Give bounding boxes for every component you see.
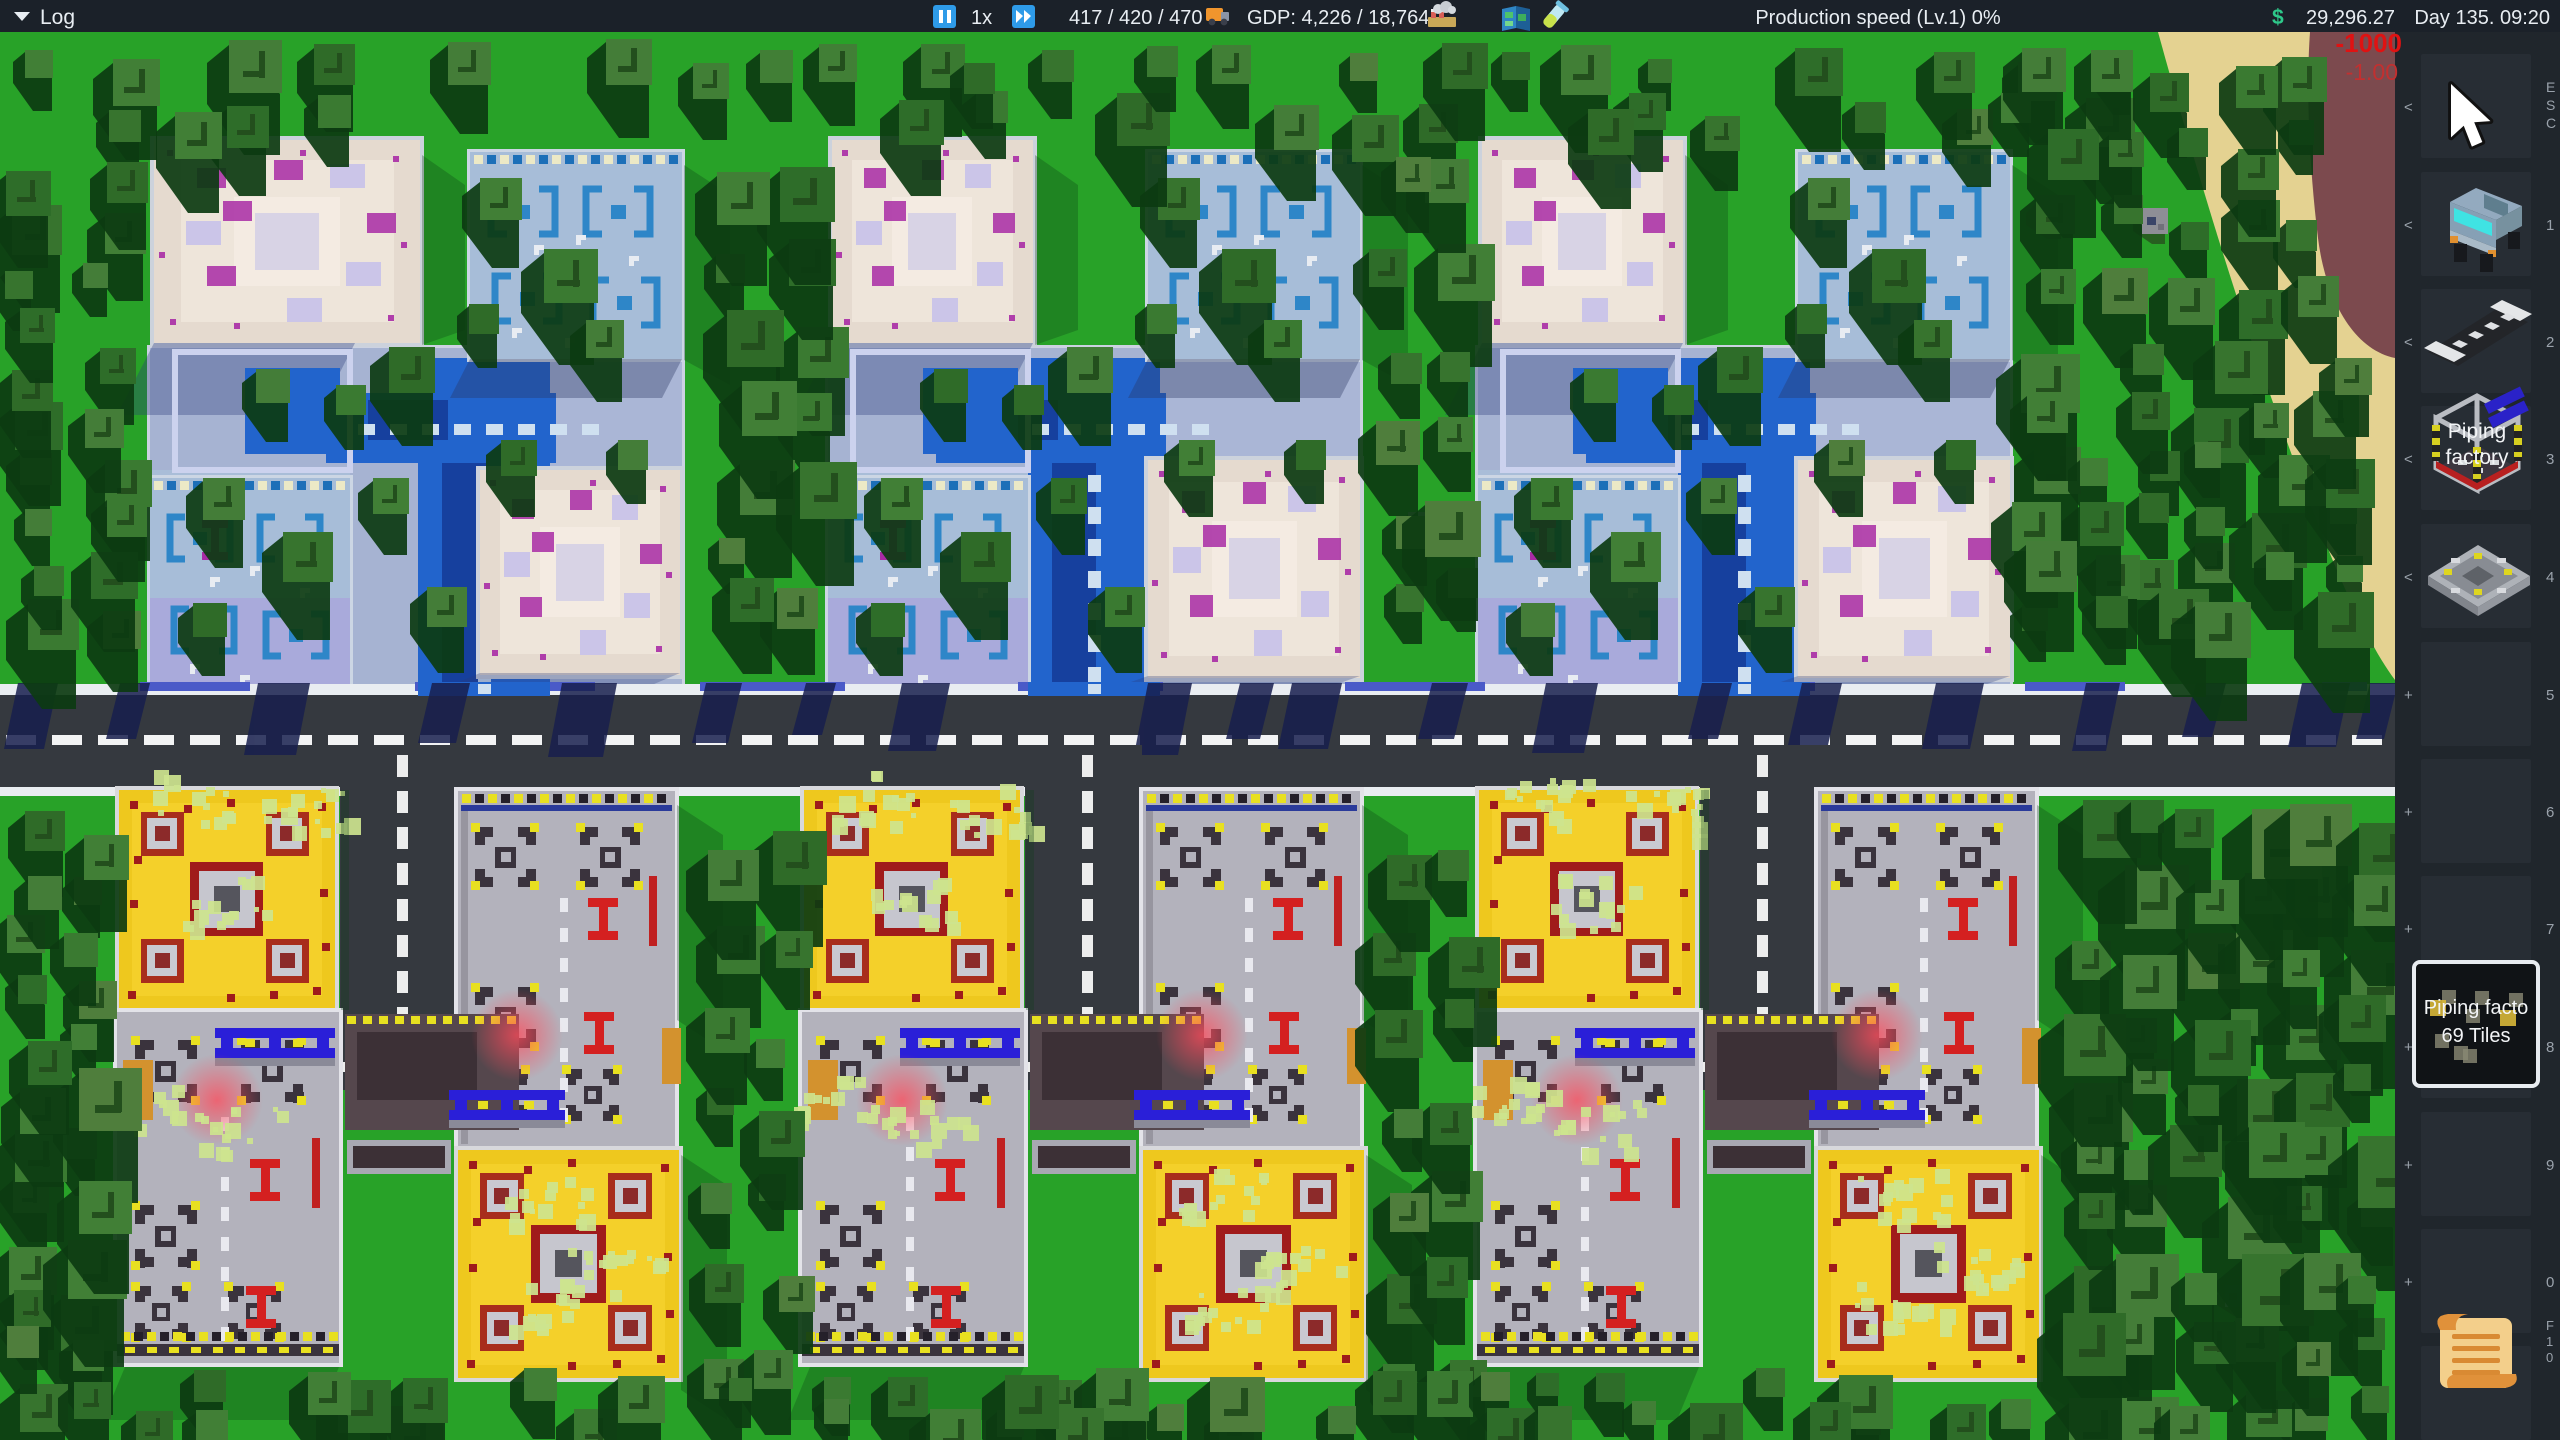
svg-text:factory: factory — [2445, 446, 2509, 469]
svg-text:69 Tiles: 69 Tiles — [2442, 1025, 2511, 1047]
svg-text:+: + — [2404, 1039, 2413, 1056]
svg-text:7: 7 — [2546, 921, 2554, 938]
svg-text:C: C — [2546, 115, 2556, 131]
svg-text:Production speed (Lv.1) 0%: Production speed (Lv.1) 0% — [1755, 7, 2001, 29]
svg-text:$: $ — [2272, 6, 2284, 29]
svg-text:<: < — [2404, 334, 2413, 351]
svg-text:<: < — [2404, 569, 2413, 586]
svg-text:<: < — [2404, 99, 2413, 116]
svg-text:8: 8 — [2546, 1039, 2554, 1056]
svg-text:<: < — [2404, 451, 2413, 468]
svg-text:+: + — [2404, 687, 2413, 704]
svg-text:0: 0 — [2546, 1274, 2554, 1291]
svg-text:9: 9 — [2546, 1157, 2554, 1174]
svg-text:+: + — [2404, 1274, 2413, 1291]
svg-text:Piping: Piping — [2448, 420, 2506, 443]
svg-text:<: < — [2404, 217, 2413, 234]
svg-text:1: 1 — [2546, 217, 2554, 234]
svg-text:1x: 1x — [971, 7, 992, 29]
svg-text:6: 6 — [2546, 804, 2554, 821]
svg-text:GDP: 4,226 / 18,764: GDP: 4,226 / 18,764 — [1247, 7, 1429, 29]
svg-text:+: + — [2404, 921, 2413, 938]
svg-text:Piping facto: Piping facto — [2424, 997, 2529, 1019]
svg-text:417 / 420 / 470: 417 / 420 / 470 — [1069, 7, 1202, 29]
svg-text:2: 2 — [2546, 334, 2554, 351]
svg-text:+: + — [2404, 804, 2413, 821]
svg-text:1: 1 — [2546, 1334, 2553, 1349]
svg-text:F: F — [2546, 1318, 2554, 1333]
svg-text:3: 3 — [2546, 451, 2554, 468]
svg-text:5: 5 — [2546, 687, 2554, 704]
svg-text:Log: Log — [40, 6, 75, 29]
svg-text:29,296.27: 29,296.27 — [2306, 7, 2395, 29]
svg-text:+: + — [2404, 1157, 2413, 1174]
svg-text:-1000: -1000 — [2336, 28, 2403, 58]
svg-text:0: 0 — [2546, 1350, 2553, 1365]
svg-text:-1.00: -1.00 — [2346, 59, 2398, 85]
svg-text:4: 4 — [2546, 569, 2554, 586]
svg-text:S: S — [2546, 97, 2555, 113]
svg-text:Day 135. 09:20: Day 135. 09:20 — [2414, 7, 2550, 29]
svg-text:E: E — [2546, 79, 2555, 95]
